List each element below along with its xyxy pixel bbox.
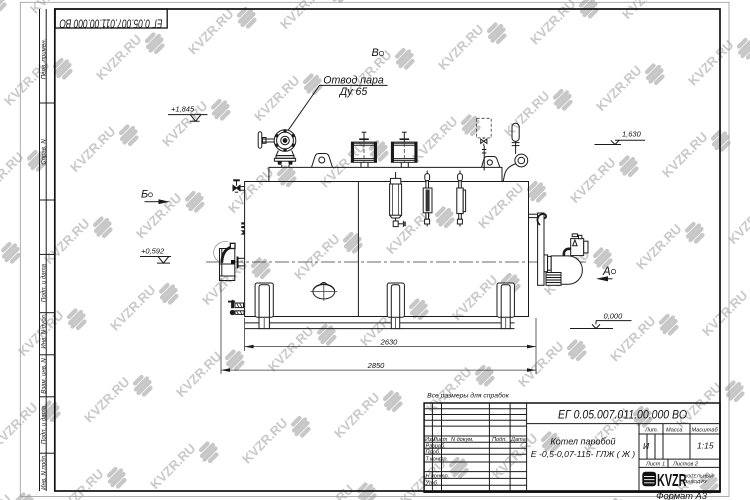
svg-text:+1,845: +1,845 xyxy=(171,105,195,114)
svg-text:KVZR.RU: KVZR.RU xyxy=(173,349,224,400)
svg-text:KVZR.RU: KVZR.RU xyxy=(0,241,1,292)
svg-text:KVZR.RU: KVZR.RU xyxy=(435,22,486,73)
svg-text:Лист: Лист xyxy=(432,437,448,443)
svg-text:Ду 65: Ду 65 xyxy=(339,86,368,98)
svg-text:Формат А3: Формат А3 xyxy=(656,491,708,500)
svg-text:ЕГ 0.05.007.011.00.000 ВО: ЕГ 0.05.007.011.00.000 ВО xyxy=(60,17,163,31)
svg-text:Листов 2: Листов 2 xyxy=(672,462,699,468)
svg-text:KVZR.RU: KVZR.RU xyxy=(107,282,158,333)
svg-text:Масса: Масса xyxy=(666,428,683,434)
svg-text:KVZR.RU: KVZR.RU xyxy=(93,32,144,83)
svg-text:KVZR.RU: KVZR.RU xyxy=(239,415,290,466)
svg-text:KVZR.RU: KVZR.RU xyxy=(423,364,474,415)
svg-text:А: А xyxy=(602,266,611,278)
svg-text:KVZR.RU: KVZR.RU xyxy=(265,323,316,374)
svg-text:KVZR.RU: KVZR.RU xyxy=(291,231,342,282)
svg-text:KVZR: KVZR xyxy=(657,470,687,490)
svg-text:Е -0,5-0,07-115- ГЛЖ ( Ж ): Е -0,5-0,07-115- ГЛЖ ( Ж ) xyxy=(531,449,635,459)
svg-text:KVZR.RU: KVZR.RU xyxy=(633,221,684,272)
svg-text:Справ. N: Справ. N xyxy=(41,139,48,165)
svg-text:Б: Б xyxy=(141,189,148,201)
svg-text:KVZR.RU: KVZR.RU xyxy=(81,374,132,425)
svg-text:Т.контр.: Т.контр. xyxy=(426,457,449,463)
svg-text:2850: 2850 xyxy=(367,361,386,370)
svg-text:Масштаб: Масштаб xyxy=(692,428,719,434)
svg-text:KVZR.RU: KVZR.RU xyxy=(55,466,106,500)
svg-text:Н.контр.: Н.контр. xyxy=(426,474,450,480)
svg-text:Котел паробой: Котел паробой xyxy=(550,437,615,447)
svg-text:KVZR.RU: KVZR.RU xyxy=(475,180,526,231)
svg-text:+0,592: +0,592 xyxy=(141,247,165,256)
svg-text:KVZR.RU: KVZR.RU xyxy=(0,492,15,500)
svg-text:KVZR.RU: KVZR.RU xyxy=(147,441,198,492)
svg-text:0,000: 0,000 xyxy=(604,312,624,321)
svg-text:KVZR.RU: KVZR.RU xyxy=(41,216,92,267)
svg-text:KVZR.RU: KVZR.RU xyxy=(593,63,644,114)
svg-text:Подп. и дата: Подп. и дата xyxy=(41,405,48,444)
svg-text:Инв. N дубл.: Инв. N дубл. xyxy=(41,313,48,348)
svg-text:ЕГ 0.05.007.011.00.000 ВО: ЕГ 0.05.007.011.00.000 ВО xyxy=(558,408,687,422)
svg-text:Подп. и дата: Подп. и дата xyxy=(41,263,48,302)
svg-text:KVZR.RU: KVZR.RU xyxy=(0,149,27,200)
svg-text:ЗАВОД РУ: ЗАВОД РУ xyxy=(685,479,709,484)
svg-text:В: В xyxy=(372,47,379,59)
svg-text:KVZR.RU: KVZR.RU xyxy=(185,6,236,57)
svg-text:KVZR.RU: KVZR.RU xyxy=(251,73,302,124)
svg-text:1:15: 1:15 xyxy=(697,441,714,451)
svg-text:Проб.: Проб. xyxy=(426,449,441,455)
svg-text:И: И xyxy=(643,441,650,451)
svg-text:Перв. примен.: Перв. примен. xyxy=(41,39,48,80)
svg-text:KVZR.RU: KVZR.RU xyxy=(331,390,382,441)
svg-text:KVZR.RU: KVZR.RU xyxy=(277,0,328,32)
svg-text:1,630: 1,630 xyxy=(622,130,642,139)
svg-text:Подп.: Подп. xyxy=(492,437,507,443)
svg-text:KVZR.RU: KVZR.RU xyxy=(67,124,118,175)
svg-text:Дата: Дата xyxy=(510,437,526,443)
svg-text:KVZR.RU: KVZR.RU xyxy=(699,288,750,339)
svg-text:N докум.: N докум. xyxy=(451,437,474,443)
svg-text:Инв. N подл.: Инв. N подл. xyxy=(41,454,48,490)
svg-text:2630: 2630 xyxy=(380,338,399,347)
svg-text:KVZR.RU: KVZR.RU xyxy=(501,88,552,139)
svg-text:Отвод пара: Отвод пара xyxy=(323,74,384,86)
svg-text:KVZR.RU: KVZR.RU xyxy=(449,272,500,323)
svg-text:Лит.: Лит. xyxy=(644,428,658,434)
svg-text:Взам. инв. N: Взам. инв. N xyxy=(41,358,48,394)
svg-text:Утб.: Утб. xyxy=(425,480,439,486)
svg-text:KVZR.RU: KVZR.RU xyxy=(659,129,710,180)
svg-text:KVZR.RU: KVZR.RU xyxy=(619,0,670,22)
svg-text:КОТЕЛЬНЫЙ: КОТЕЛЬНЫЙ xyxy=(685,472,715,479)
svg-text:KVZR.RU: KVZR.RU xyxy=(527,0,578,48)
svg-text:Лист 1: Лист 1 xyxy=(645,462,665,468)
svg-text:KVZR.RU: KVZR.RU xyxy=(567,155,618,206)
svg-text:Все размеры для спрабок: Все размеры для спрабок xyxy=(427,392,510,400)
